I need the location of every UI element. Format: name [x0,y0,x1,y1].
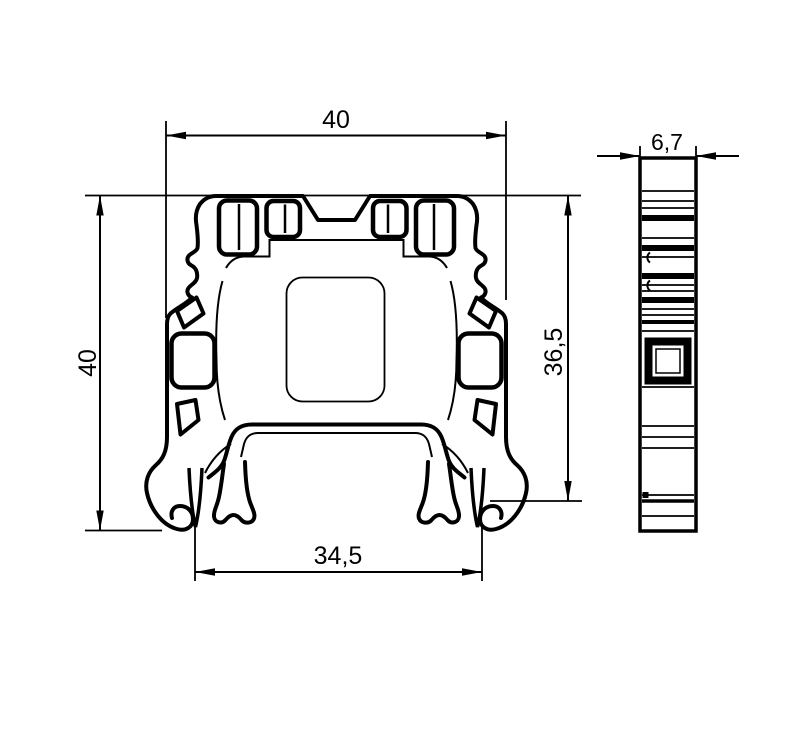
dimension-arrow-icon [96,511,103,531]
screw-cavity-window [653,346,684,377]
dimension-arrow-icon [166,132,186,139]
dimension-arrow-icon [620,152,640,159]
band-tick-detail [643,492,649,498]
dim-top-width-label: 40 [322,106,350,134]
front-view-drawing [146,196,527,530]
profile-left-half [146,196,336,530]
dim-bottom-width: 34,5 [195,524,482,581]
dim-left-height-label: 40 [74,349,102,377]
side-view-drawing [640,158,696,531]
dimension-arrow-icon [486,132,506,139]
dimension-arrow-icon [564,481,571,501]
dim-bottom-width-label: 34,5 [314,542,363,570]
dimension-arrow-icon [564,196,571,216]
dim-side-width-label: 6,7 [651,129,683,155]
technical-drawing-canvas: 40 40 36,5 34,5 6,7 [0,0,800,737]
technical-drawing-page: 40 40 36,5 34,5 6,7 [0,0,800,737]
dim-left-height: 40 [74,196,162,531]
dimension-arrow-icon [696,152,716,159]
dim-side-width: 6,7 [597,129,739,160]
center-window [287,278,385,402]
dim-right-height-label: 36,5 [540,328,568,377]
dimension-arrow-icon [195,568,215,575]
dim-right-height: 36,5 [490,196,582,502]
dimension-arrow-icon [96,196,103,216]
dimension-arrow-icon [462,568,482,575]
profile-right-half [337,196,527,530]
